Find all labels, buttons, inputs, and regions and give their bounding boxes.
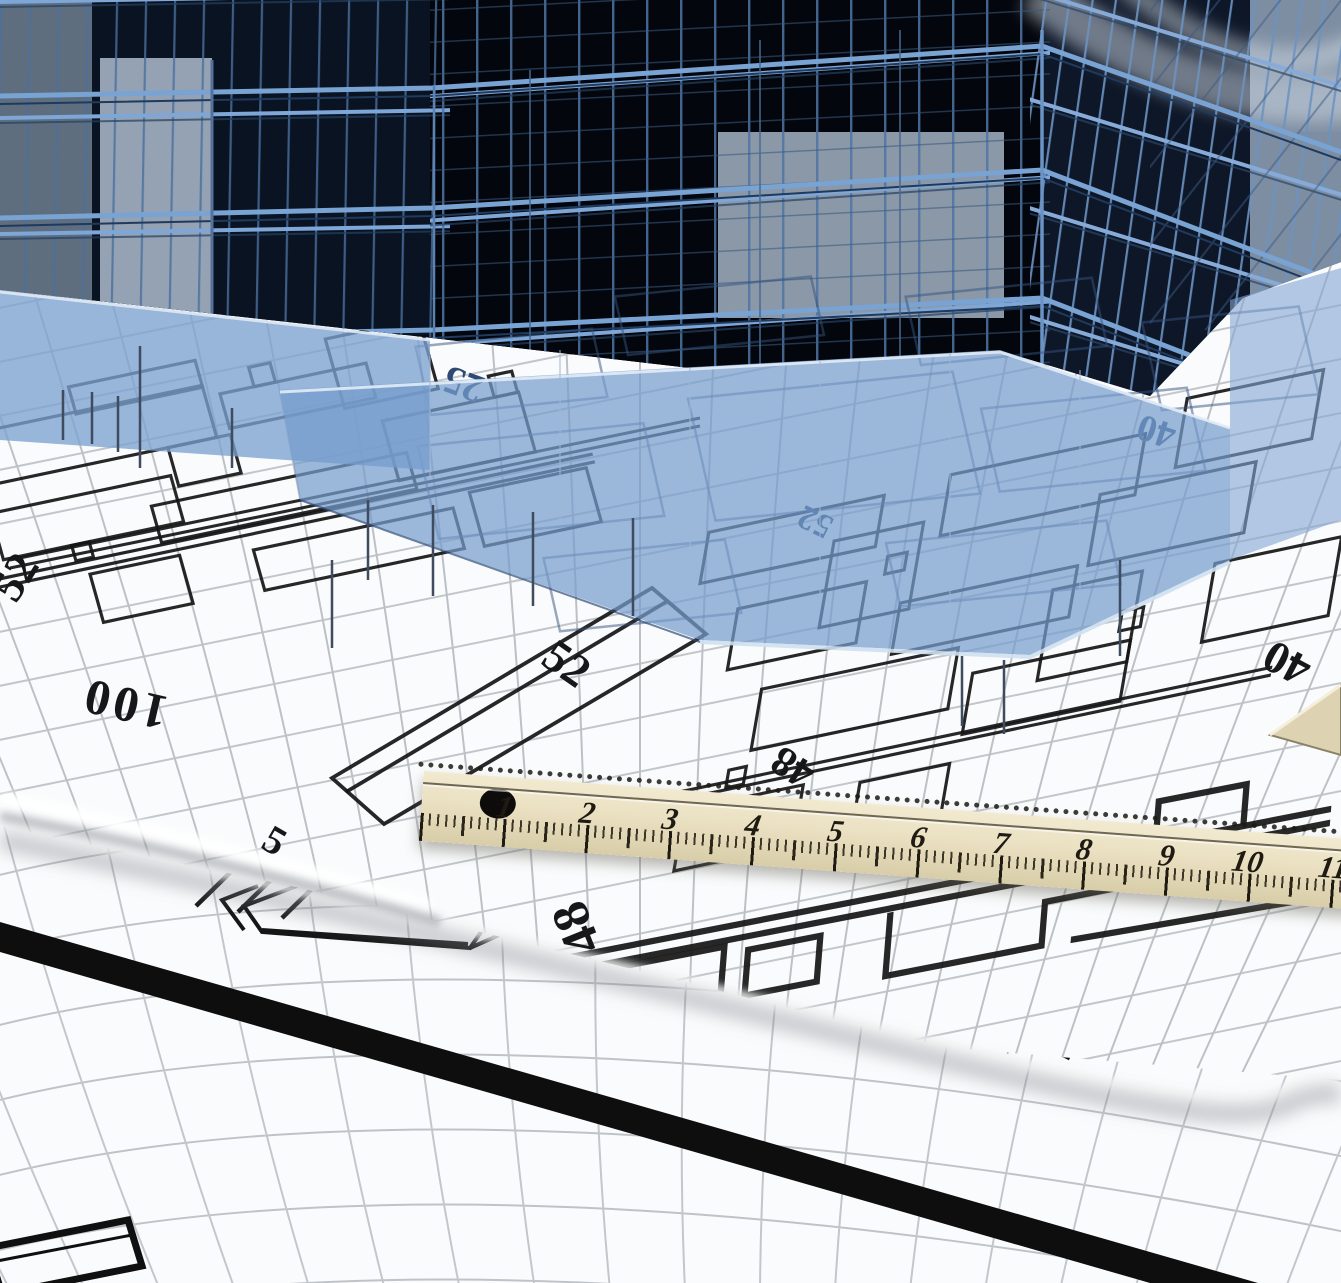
ruler-number-11: 11 (1300, 848, 1341, 888)
ruler-number-10: 10 (1214, 842, 1280, 882)
scene-art: 25 52 40 52 100 52 48 40 5 4 (0, 0, 1341, 1283)
ruler-number-6: 6 (885, 817, 951, 857)
ruler-number-5: 5 (803, 811, 869, 851)
ruler-number-1: 1 (471, 787, 537, 827)
ruler-number-4: 4 (720, 805, 786, 845)
ruler-number-9: 9 (1134, 836, 1200, 876)
ruler-number-3: 3 (637, 799, 703, 839)
ruler-number-2: 2 (554, 793, 620, 833)
blueprint-scene: 25 52 40 52 100 52 48 40 5 4 (0, 0, 1341, 1283)
ruler-number-8: 8 (1051, 830, 1117, 870)
ruler-number-7: 7 (968, 823, 1034, 863)
